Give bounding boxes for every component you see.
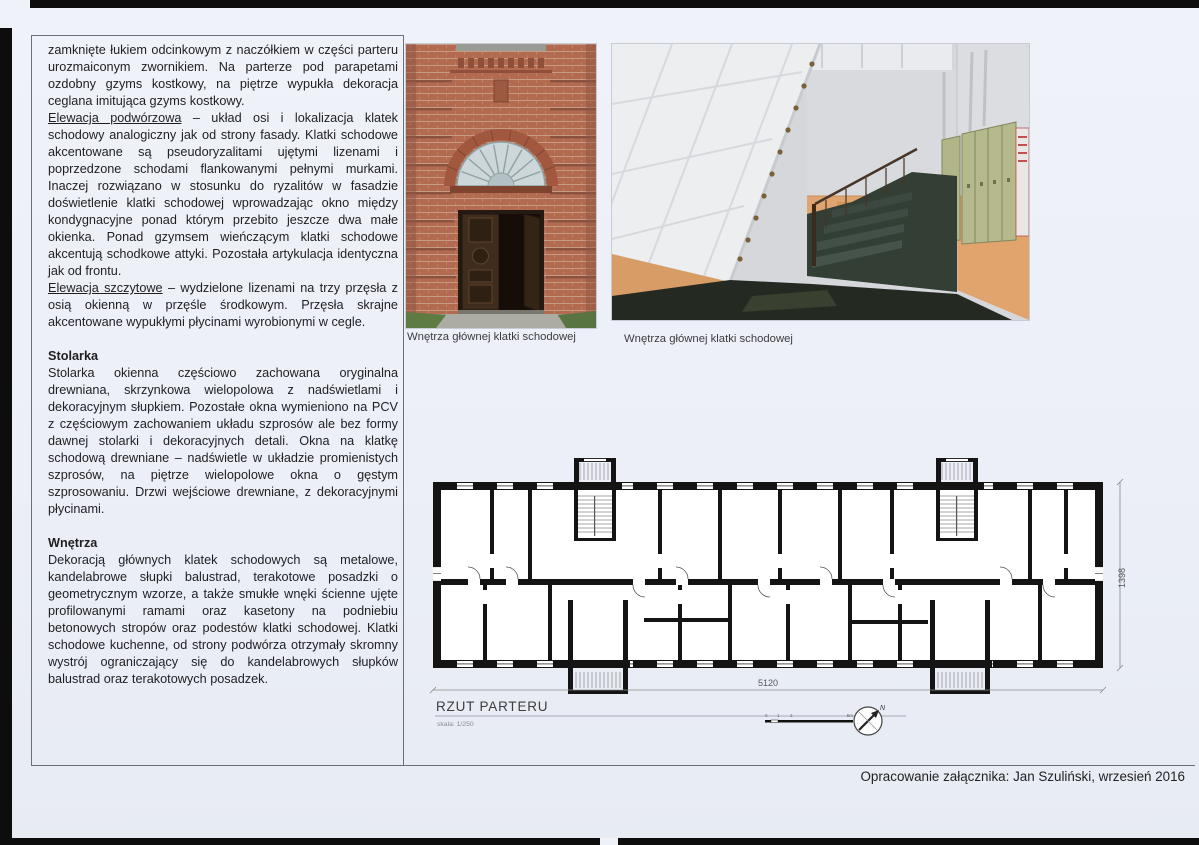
scan-edge-top [30,0,1199,8]
scale-bar-1: 1 [777,713,780,718]
paragraph-wnetrza: Dekoracją głównych klatek schodowych są … [48,552,398,688]
scan-edge-left [0,28,12,845]
photo-staircase-interior [611,43,1030,321]
paragraph-text: – układ osi i lokalizacja klatek schodow… [48,111,398,278]
fanlight-sill [450,186,552,193]
paragraph-facade-continuation: zamknięte łukiem odcinkowym z naczółkiem… [48,42,398,110]
photo-entrance-portal [405,43,597,329]
niche-plaque [494,80,508,102]
photo-caption-2: Wnętrza głównej klatki schodowej [624,333,864,345]
wall-poster [1016,128,1029,236]
footer-credit: Opracowanie załącznika: Jan Szuliński, w… [860,769,1185,784]
frame-left-border [31,35,32,765]
scan-edge-bottom-gap [600,838,618,845]
scanned-document-page: zamknięte łukiem odcinkowym z naczółkiem… [0,0,1199,845]
staircase-photo-graphic [612,44,1029,320]
entrance-photo-graphic [406,44,596,328]
text-column: zamknięte łukiem odcinkowym z naczółkiem… [48,42,398,688]
exterior-wall-bottom [433,660,1103,668]
right-shadow [586,44,596,328]
entrance-door-left-leaf [462,214,499,310]
photo-caption-1: Wnętrza głównej klatki schodowej [407,331,607,343]
stair-tower-top-left [574,458,616,484]
left-shadow [406,44,416,328]
scale-bar-0: 0 [765,713,768,718]
frame-bottom-border [31,765,1195,766]
concrete-path [434,314,568,328]
scale-bar-2: 2 [790,713,793,718]
meter-cabinets [962,122,1016,244]
entrance-door-open-leaf [524,214,540,312]
lead-elewacja-szczytowe: Elewacja szczytowe [48,281,163,295]
frame-top-border [31,35,403,36]
scale-bar-5m: 5m [847,713,854,718]
lead-elewacja-podworzowa: Elewacja podwórzowa [48,111,181,125]
floor-plan: 5120 1398 RZUT PARTERU skala: 1/250 0 1 … [428,450,1128,750]
dimension-height-label: 1398 [1117,568,1127,588]
floor-plan-drawing: 5120 1398 RZUT PARTERU skala: 1/250 0 1 … [428,450,1128,750]
exterior-wall-top [433,482,1103,490]
frame-column-divider [403,35,404,765]
paragraph-elewacja-podworzowa: Elewacja podwórzowa – układ osi i lokali… [48,110,398,280]
building-interior [441,490,1095,660]
north-label: N [880,705,886,712]
newel-post [812,204,816,266]
plan-scale-label: skala: 1/250 [437,721,474,728]
north-arrow-icon: N [854,705,886,735]
heading-stolarka: Stolarka [48,348,398,365]
dimension-width-label: 5120 [758,678,778,688]
scale-bar: 0 1 2 5m [765,713,853,723]
plan-title: RZUT PARTERU [436,699,548,714]
stair-tower-top-right [936,458,978,484]
paragraph-elewacja-szczytowe: Elewacja szczytowe – wydzielone lizenami… [48,280,398,331]
stone-coping [456,44,546,51]
heading-wnetrza: Wnętrza [48,535,398,552]
paragraph-stolarka: Stolarka okienna częściowo zachowana ory… [48,365,398,518]
